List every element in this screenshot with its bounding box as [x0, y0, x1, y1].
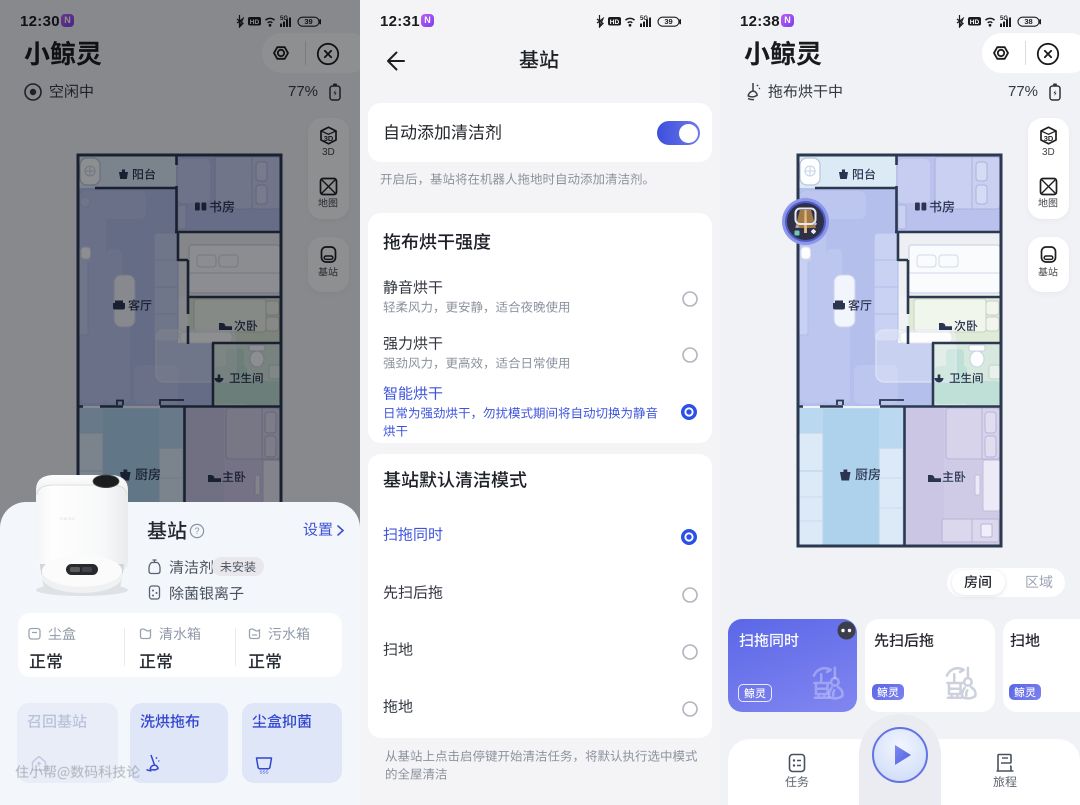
svg-text:HD: HD: [610, 19, 620, 26]
svg-text:SSS: SSS: [259, 770, 268, 775]
svg-text:38: 38: [1024, 17, 1032, 26]
svg-text:3D: 3D: [1044, 134, 1054, 143]
svg-text:SWDK: SWDK: [60, 516, 76, 521]
svg-text:?: ?: [194, 526, 199, 536]
svg-text:HD: HD: [970, 19, 980, 26]
svg-text:39: 39: [664, 17, 672, 26]
